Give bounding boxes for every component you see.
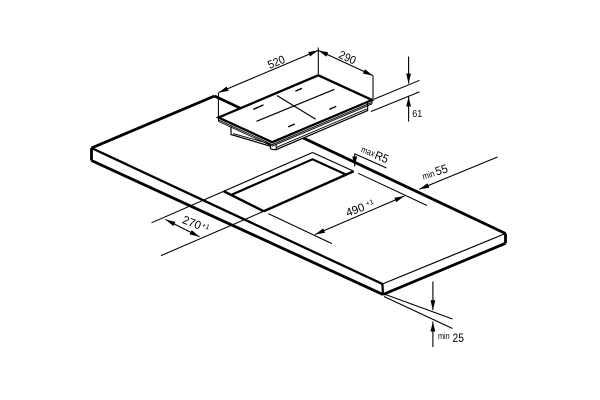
svg-text:61: 61 [412, 108, 422, 120]
svg-text:min: min [438, 331, 450, 341]
svg-text:25: 25 [453, 333, 464, 345]
